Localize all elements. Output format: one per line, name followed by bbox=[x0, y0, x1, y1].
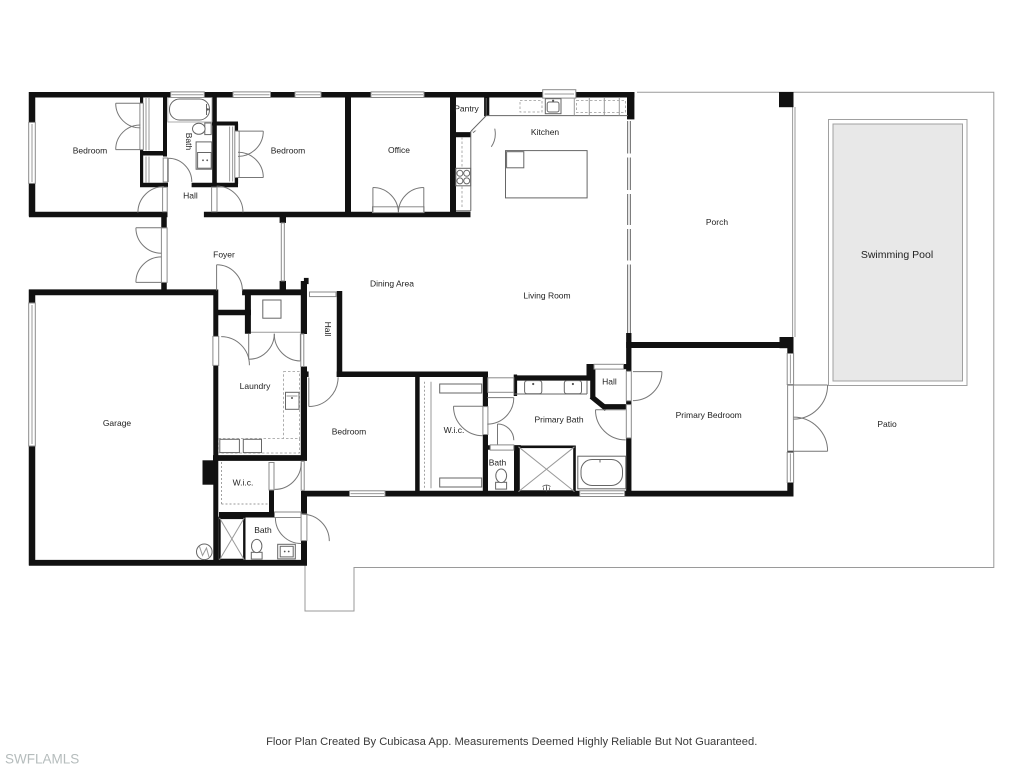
svg-text:Office: Office bbox=[388, 145, 410, 155]
svg-text:Laundry: Laundry bbox=[240, 381, 271, 391]
svg-text:Patio: Patio bbox=[877, 419, 897, 429]
svg-text:Foyer: Foyer bbox=[213, 250, 235, 260]
svg-text:Floor Plan Created By Cubicasa: Floor Plan Created By Cubicasa App. Meas… bbox=[266, 736, 757, 748]
svg-text:Bath: Bath bbox=[184, 133, 194, 151]
svg-text:Dining Area: Dining Area bbox=[370, 278, 414, 288]
svg-text:Pantry: Pantry bbox=[454, 104, 479, 114]
svg-text:Bath: Bath bbox=[254, 525, 272, 535]
svg-text:Bedroom: Bedroom bbox=[73, 146, 108, 156]
svg-text:Hall: Hall bbox=[602, 377, 617, 387]
svg-text:Bedroom: Bedroom bbox=[332, 427, 367, 437]
svg-text:Bedroom: Bedroom bbox=[271, 146, 306, 156]
svg-text:Swimming Pool: Swimming Pool bbox=[861, 249, 933, 261]
svg-text:Porch: Porch bbox=[706, 217, 728, 227]
svg-text:Living Room: Living Room bbox=[523, 291, 570, 301]
svg-text:W.i.c.: W.i.c. bbox=[233, 478, 254, 488]
svg-text:Hall: Hall bbox=[183, 191, 198, 201]
svg-text:Garage: Garage bbox=[103, 418, 132, 428]
svg-text:Hall: Hall bbox=[323, 322, 333, 337]
svg-text:W.i.c.: W.i.c. bbox=[444, 425, 465, 435]
svg-text:SWFLAMLS: SWFLAMLS bbox=[5, 752, 79, 767]
svg-text:Kitchen: Kitchen bbox=[531, 127, 560, 137]
svg-text:Primary Bath: Primary Bath bbox=[534, 415, 583, 425]
svg-text:Primary Bedroom: Primary Bedroom bbox=[676, 410, 742, 420]
svg-text:Bath: Bath bbox=[489, 458, 507, 468]
